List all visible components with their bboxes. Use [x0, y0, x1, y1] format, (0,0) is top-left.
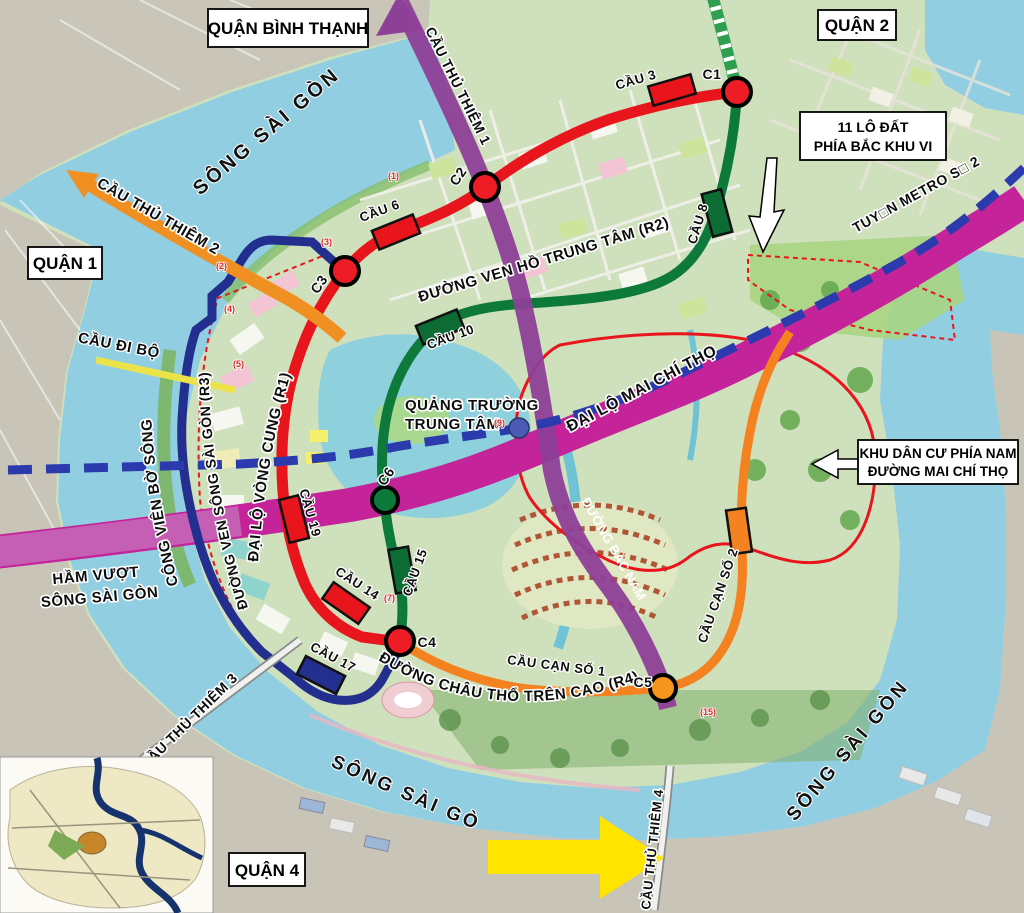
stadium-field [394, 692, 422, 708]
district-box-binh-thanh: QUẬN BÌNH THẠNH [208, 9, 369, 47]
node-c6 [372, 487, 398, 513]
svg-text:QUẬN 4: QUẬN 4 [235, 861, 300, 880]
svg-text:11 LÔ ĐẤT: 11 LÔ ĐẤT [838, 118, 909, 135]
district-box-quan2: QUẬN 2 [818, 10, 896, 40]
district-box-quan1: QUẬN 1 [28, 247, 102, 279]
node-label-c1: C1 [703, 66, 722, 82]
node-c1 [723, 78, 751, 106]
svg-text:(3): (3) [321, 237, 332, 247]
svg-text:QUẢNG TRƯỜNG: QUẢNG TRƯỜNG [405, 396, 539, 414]
svg-text:QUẬN 1: QUẬN 1 [33, 254, 97, 273]
node-c4 [386, 627, 414, 655]
node-c2 [471, 173, 499, 201]
svg-text:(7): (7) [384, 593, 395, 603]
node-label-c5: C5 [634, 674, 653, 690]
map-canvas: SÔNG SÀI GÒN SÔNG SÀI GÒN SÔNG SÀI GÒN Đ… [0, 0, 1024, 913]
inset-locator-map [0, 757, 213, 913]
svg-text:KHU DÂN CƯ PHÍA NAM: KHU DÂN CƯ PHÍA NAM [860, 446, 1017, 461]
svg-text:(15): (15) [700, 707, 716, 717]
thu-thiem-planning-map: SÔNG SÀI GÒN SÔNG SÀI GÒN SÔNG SÀI GÒN Đ… [0, 0, 1024, 913]
svg-text:QUẬN BÌNH THẠNH: QUẬN BÌNH THẠNH [208, 19, 369, 38]
svg-text:TRUNG TÂM: TRUNG TÂM [405, 415, 500, 433]
svg-text:(1): (1) [388, 171, 399, 181]
svg-text:(4): (4) [224, 304, 235, 314]
svg-text:(2): (2) [216, 261, 227, 271]
node-label-c4: C4 [418, 634, 437, 650]
svg-text:(5): (5) [233, 359, 244, 369]
district-box-quan4: QUẬN 4 [229, 853, 305, 886]
bridge-box-cau-can-2 [726, 508, 752, 554]
svg-text:(9): (9) [494, 418, 505, 428]
svg-text:ĐƯỜNG MAI CHÍ THỌ: ĐƯỜNG MAI CHÍ THỌ [868, 464, 1008, 479]
node-c5 [650, 675, 676, 701]
node-c3 [331, 257, 359, 285]
metro-station-dot [509, 418, 529, 438]
svg-text:QUẬN 2: QUẬN 2 [825, 16, 889, 35]
svg-text:PHÍA BẮC KHU VI: PHÍA BẮC KHU VI [814, 137, 933, 154]
